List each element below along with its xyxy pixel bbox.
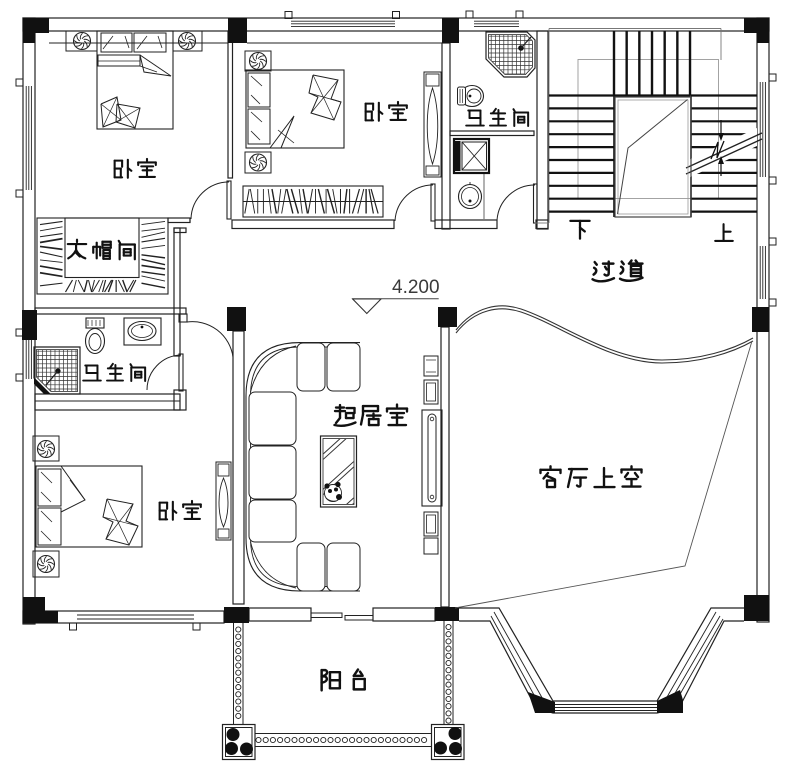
svg-text:4.200: 4.200 <box>392 277 440 298</box>
